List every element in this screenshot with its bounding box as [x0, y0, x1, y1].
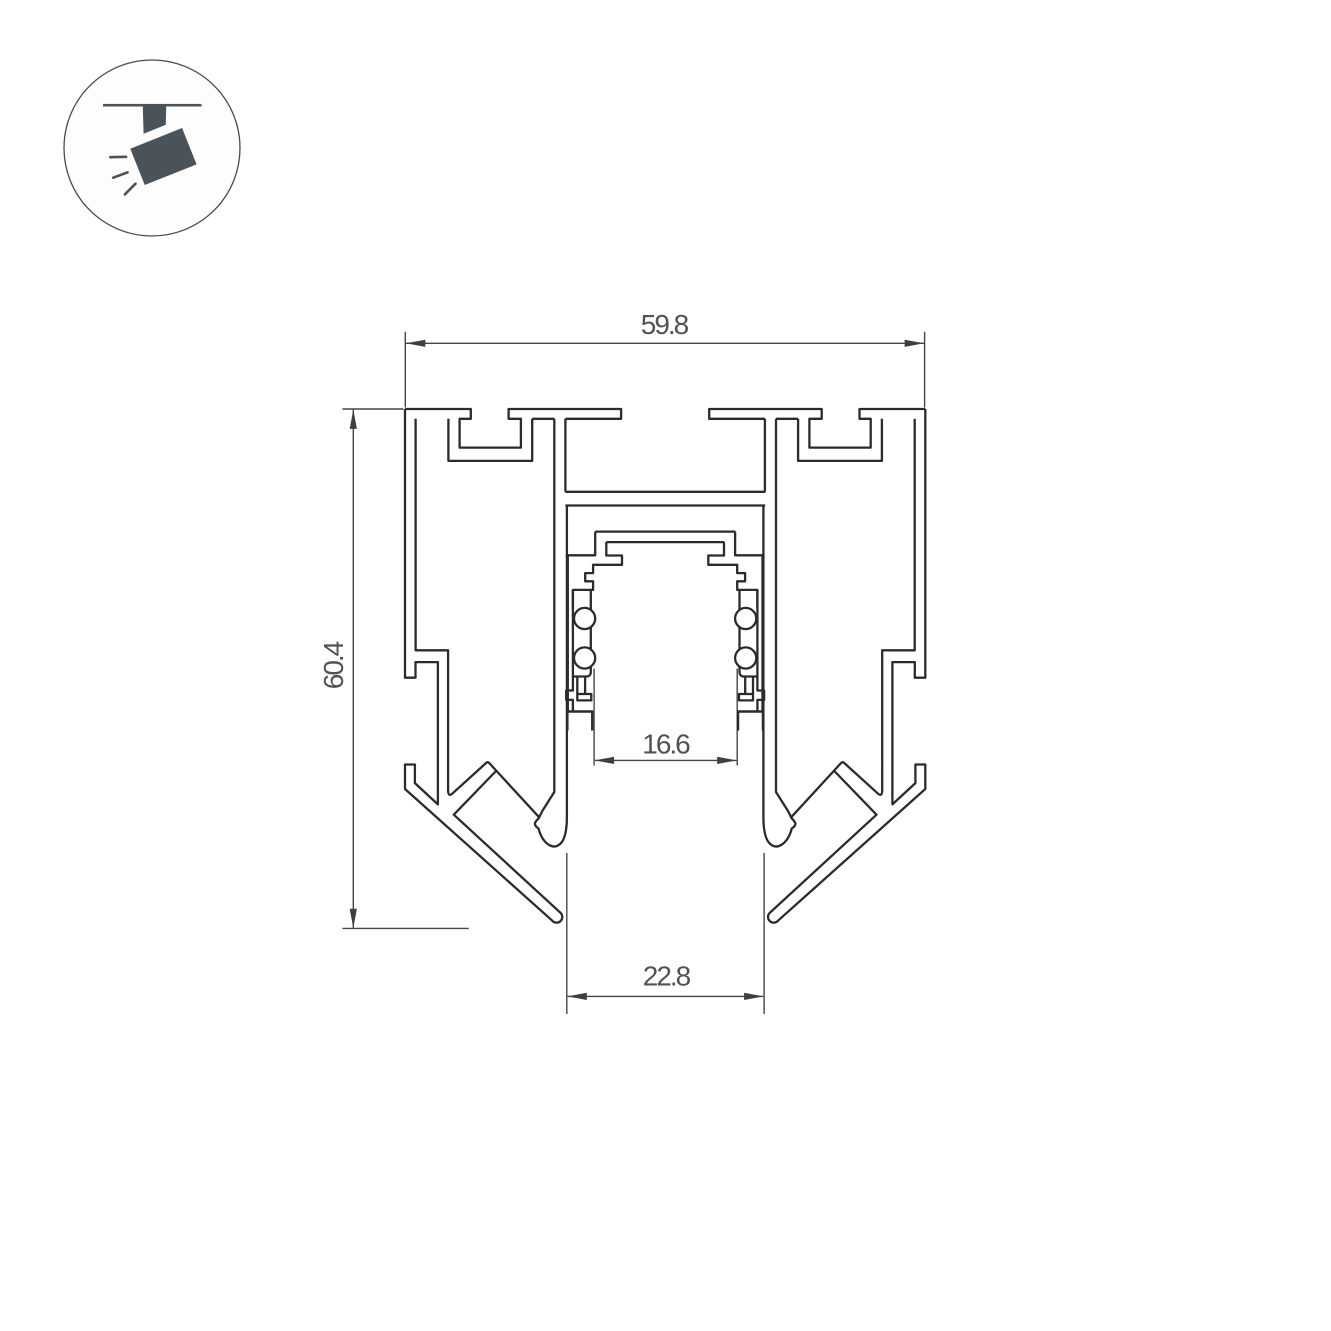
svg-text:16.6: 16.6 — [642, 729, 690, 760]
svg-text:22.8: 22.8 — [643, 961, 691, 992]
svg-text:60.4: 60.4 — [318, 641, 349, 689]
svg-text:59.8: 59.8 — [641, 309, 689, 340]
